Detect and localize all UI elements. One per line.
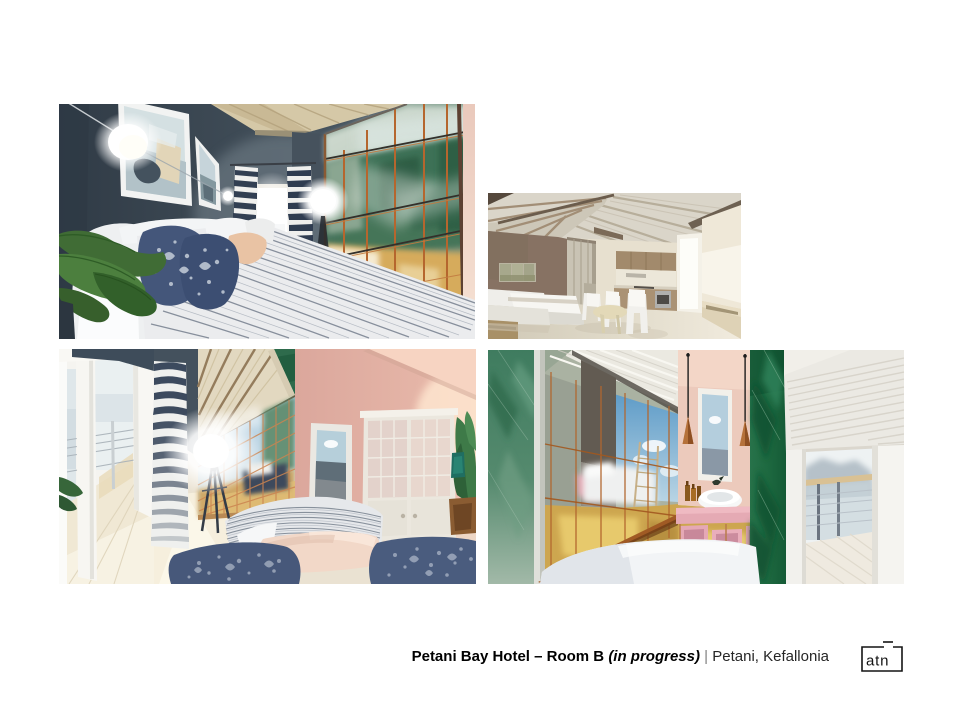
svg-text:atn: atn: [866, 653, 889, 670]
